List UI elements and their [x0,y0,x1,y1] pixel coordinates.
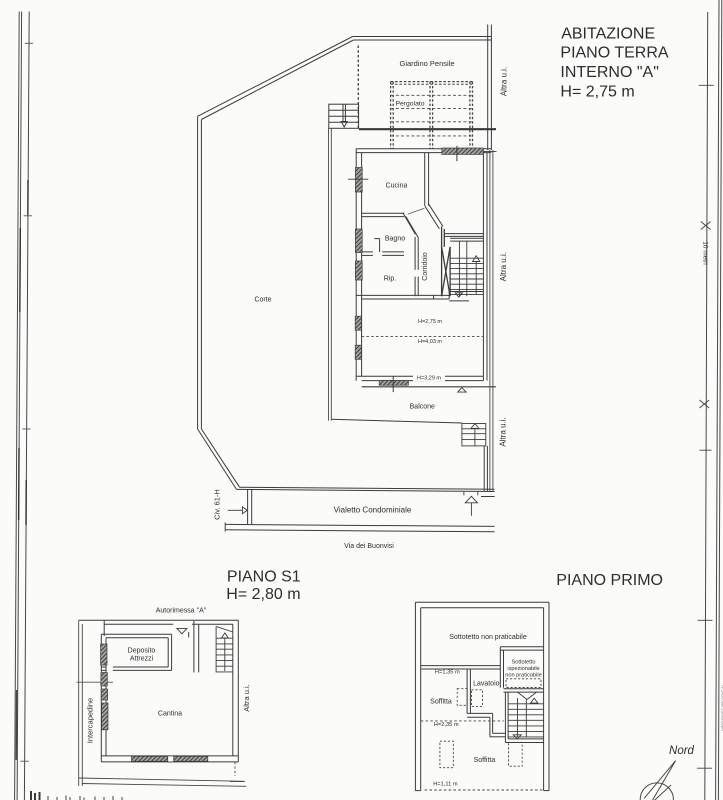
svg-text:H=2,75 m: H=2,75 m [418,319,442,325]
svg-text:PIANO PRIMO: PIANO PRIMO [556,572,663,589]
svg-text:Via dei Buonvisi: Via dei Buonvisi [344,543,394,550]
svg-text:Rip.: Rip. [384,276,397,283]
svg-text:Lavatoio: Lavatoio [473,681,500,688]
svg-text:Nord: Nord [669,745,695,757]
svg-text:H=2,35 m: H=2,35 m [434,722,459,728]
svg-text:Pergolato: Pergolato [395,101,424,108]
svg-text:Cantina: Cantina [158,711,182,718]
svg-text:Balcone: Balcone [410,404,435,411]
svg-text:INTERNO "A": INTERNO "A" [560,64,658,81]
svg-text:Altra u.i.: Altra u.i. [498,417,507,446]
svg-text:Altra u.i.: Altra u.i. [499,67,508,96]
svg-text:Soffitta: Soffitta [430,698,452,705]
svg-text:PIANO TERRA: PIANO TERRA [560,45,669,62]
svg-text:Altra u.i.: Altra u.i. [499,252,508,281]
svg-text:H=1,35 m: H=1,35 m [435,670,460,676]
svg-text:Civ. 61-H: Civ. 61-H [213,489,222,520]
svg-text:Attrezzi: Attrezzi [130,656,154,663]
svg-text:10 metri: 10 metri [702,241,709,264]
svg-text:Soffitta: Soffitta [474,757,496,764]
svg-text:H=4,03 m: H=4,03 m [418,339,442,345]
svg-text:Autorimessa "A": Autorimessa "A" [156,608,207,615]
svg-text:Corridoio: Corridoio [422,252,429,281]
svg-text:Vialetto Condominiale: Vialetto Condominiale [334,506,412,515]
svg-text:Intercapedine: Intercapedine [86,698,95,743]
svg-text:H= 2,75 m: H= 2,75 m [560,83,634,100]
svg-text:Sottotetto non praticabile: Sottotetto non praticabile [449,634,527,641]
svg-text:Sottotetto: Sottotetto [512,660,536,666]
svg-text:Giardino Pensile: Giardino Pensile [399,59,454,68]
svg-text:Deposito: Deposito [128,648,156,655]
svg-text:Cucina: Cucina [386,183,408,190]
svg-text:PIANO S1: PIANO S1 [227,569,301,586]
svg-text:ABITAZIONE: ABITAZIONE [561,25,655,42]
svg-text:H= 2,80 m: H= 2,80 m [226,586,300,603]
svg-text:Corte: Corte [254,297,271,304]
svg-text:Bagno: Bagno [385,236,405,243]
svg-text:non praticabile: non praticabile [505,673,541,679]
svg-text:H=1,11 m: H=1,11 m [433,781,458,787]
svg-text:H=3,29 m: H=3,29 m [417,376,441,382]
svg-text:Altra u.i.: Altra u.i. [242,684,251,712]
svg-text:ispezionabile: ispezionabile [507,666,539,672]
